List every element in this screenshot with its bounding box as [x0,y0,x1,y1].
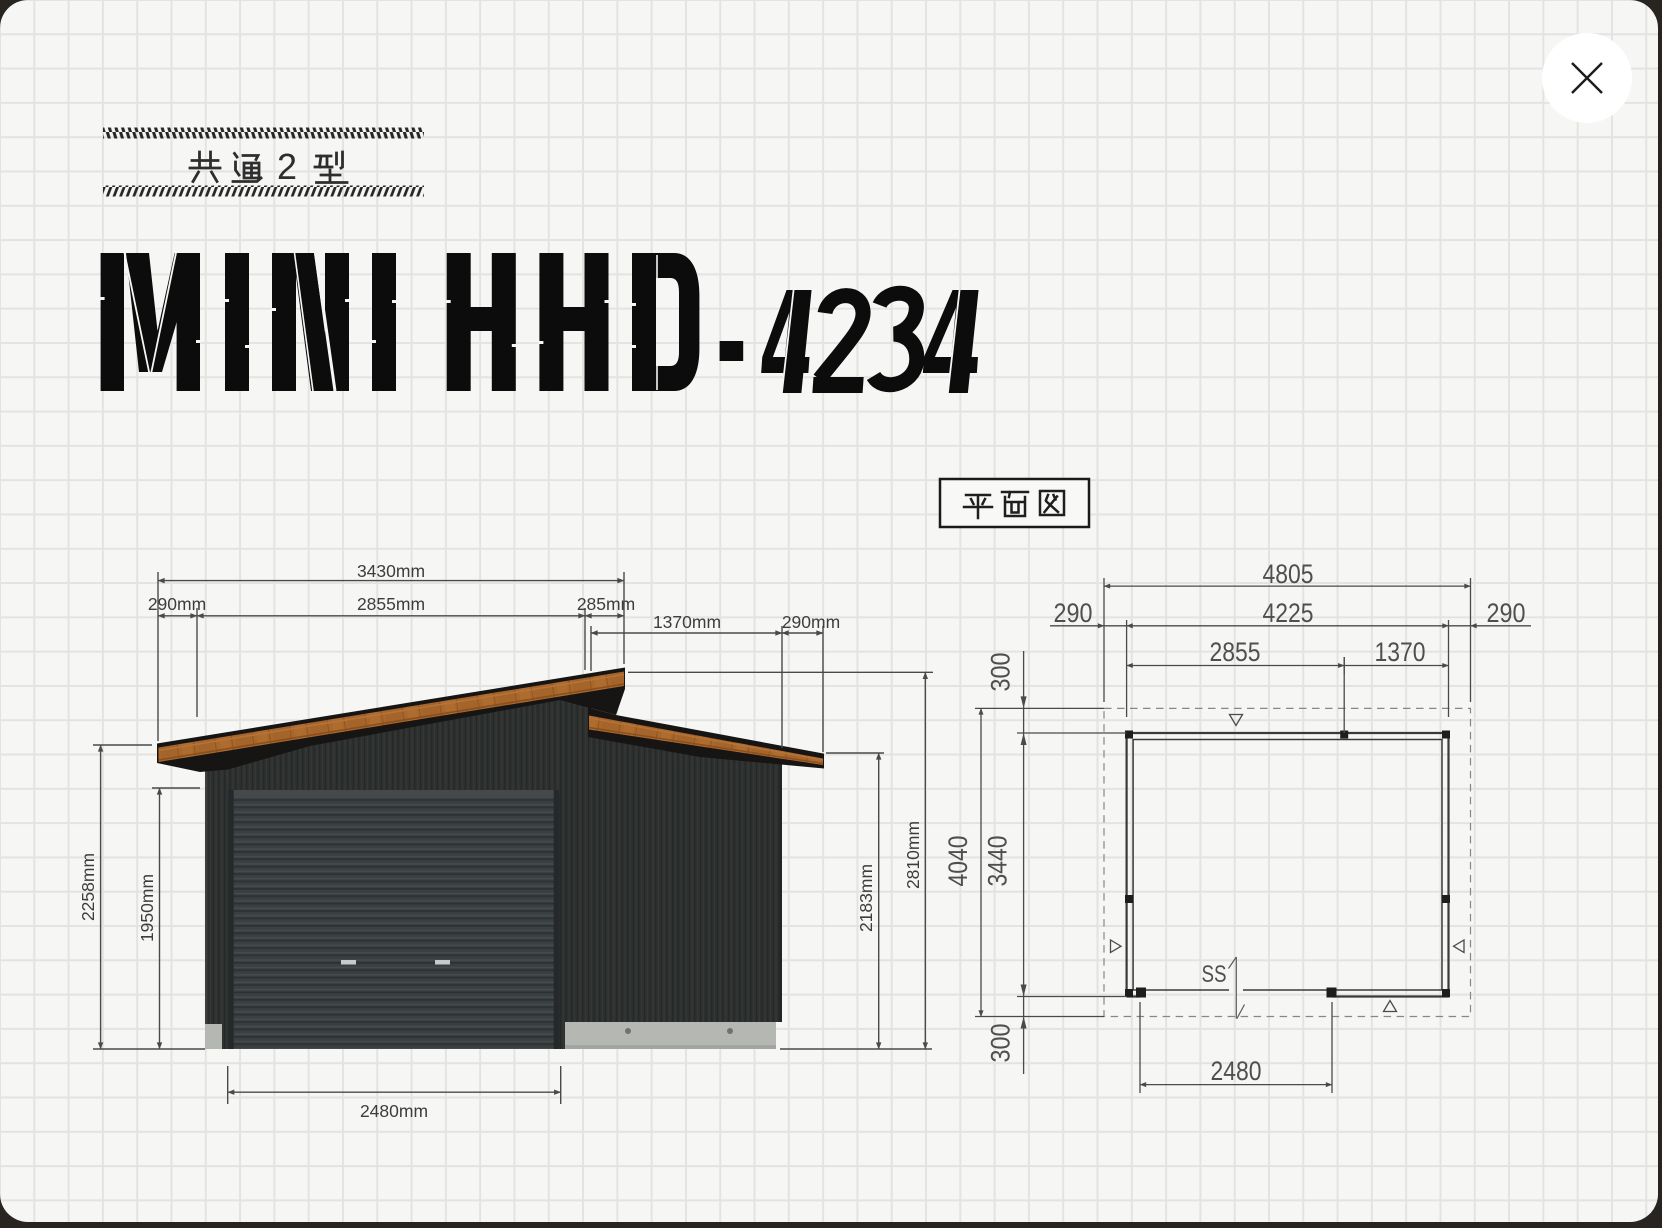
svg-text:285mm: 285mm [577,594,635,614]
svg-text:1370: 1370 [1375,637,1426,667]
svg-text:3430mm: 3430mm [357,561,425,581]
svg-text:4225: 4225 [1263,598,1314,628]
svg-text:2480: 2480 [1211,1056,1262,1086]
svg-text:2810mm: 2810mm [903,821,923,889]
svg-text:1370mm: 1370mm [653,612,721,632]
svg-text:2183mm: 2183mm [856,864,876,932]
svg-text:2855: 2855 [1210,637,1261,667]
svg-text:SS: SS [1202,961,1227,988]
svg-text:2855mm: 2855mm [357,594,425,614]
svg-text:2480mm: 2480mm [360,1101,428,1121]
svg-text:290: 290 [1054,598,1093,628]
svg-text:2258mm: 2258mm [78,853,98,921]
svg-text:290mm: 290mm [148,594,206,614]
svg-text:300: 300 [986,652,1016,691]
svg-text:290mm: 290mm [782,612,840,632]
svg-text:4040: 4040 [943,836,973,887]
svg-text:3440: 3440 [983,836,1013,887]
svg-text:300: 300 [986,1023,1016,1062]
svg-text:290: 290 [1487,598,1526,628]
svg-text:2: 2 [277,146,297,187]
svg-text:1950mm: 1950mm [137,874,157,942]
svg-text:4805: 4805 [1263,559,1314,589]
